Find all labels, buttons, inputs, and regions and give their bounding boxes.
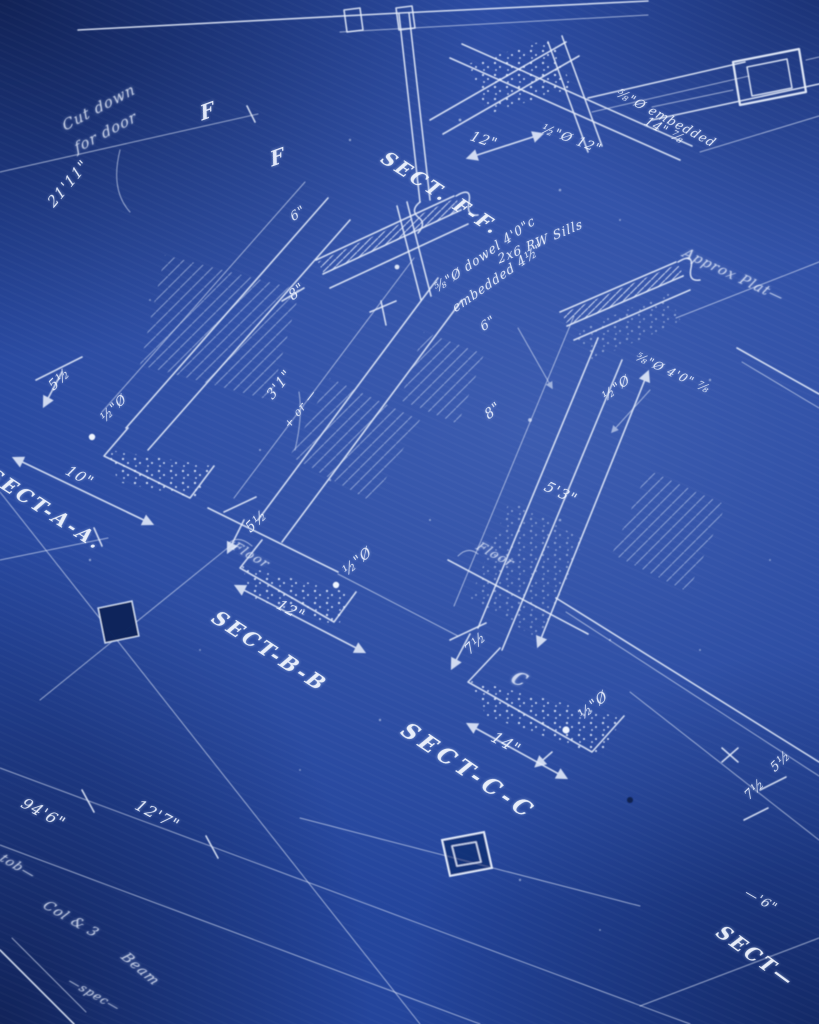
blueprint-linework	[0, 0, 819, 1024]
section-bb-detail	[224, 192, 478, 652]
section-aa-detail	[0, 182, 420, 1024]
bottom-lines	[0, 768, 819, 1024]
blueprint-photo: Cut down for door 21'11" F F SECT. F-F. …	[0, 0, 819, 1024]
